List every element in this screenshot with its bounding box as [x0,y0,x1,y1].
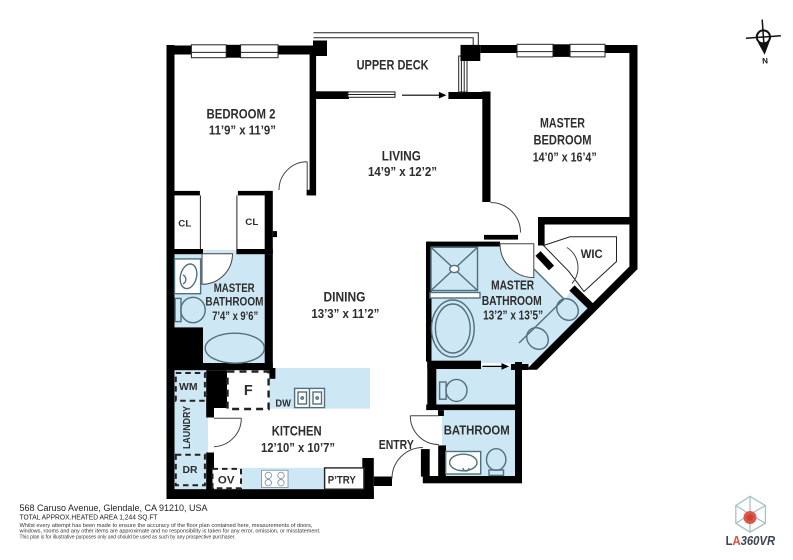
svg-text:14’9” x 12’2”: 14’9” x 12’2” [368,164,437,179]
svg-text:LAUNDRY: LAUNDRY [181,406,193,449]
svg-text:14’0” x 16’4”: 14’0” x 16’4” [533,150,597,165]
svg-text:DINING: DINING [324,290,366,305]
svg-text:CL: CL [178,219,191,230]
svg-text:F: F [244,383,253,399]
svg-text:P’TRY: P’TRY [328,475,357,487]
svg-text:7’4” x 9’6”: 7’4” x 9’6” [212,311,258,323]
svg-text:568 Caruso Avenue, Glendale, C: 568 Caruso Avenue, Glendale, CA 91210, U… [20,503,209,514]
svg-text:13’3” x 11’2”: 13’3” x 11’2” [311,306,379,321]
svg-text:MASTER: MASTER [540,115,585,131]
svg-text:MASTER: MASTER [214,281,255,295]
svg-text:DR: DR [183,464,198,476]
svg-text:LA360VR: LA360VR [726,534,776,548]
svg-text:BATHROOM: BATHROOM [444,423,510,438]
svg-text:OV: OV [218,475,235,487]
svg-text:KITCHEN: KITCHEN [272,423,322,439]
svg-text:BATHROOM: BATHROOM [482,293,542,308]
svg-text:11’9” x 11’9”: 11’9” x 11’9” [209,123,276,138]
svg-text:This plan is for illustrative: This plan is for illustrative purposes o… [20,535,236,541]
svg-text:MASTER: MASTER [491,278,534,293]
svg-text:13’2” x 13’5”: 13’2” x 13’5” [483,309,543,323]
svg-text:BEDROOM 2: BEDROOM 2 [207,105,276,121]
svg-text:WIC: WIC [581,249,603,261]
svg-text:LIVING: LIVING [382,147,421,163]
svg-text:WM: WM [179,381,198,393]
svg-text:UPPER DECK: UPPER DECK [357,57,429,73]
svg-text:BATHROOM: BATHROOM [205,294,263,308]
svg-text:N: N [762,56,769,65]
svg-text:BEDROOM: BEDROOM [534,132,592,148]
svg-text:ENTRY: ENTRY [379,438,415,452]
svg-text:DW: DW [275,398,291,409]
svg-text:CL: CL [245,217,258,228]
svg-text:TOTAL APPROX.HEATED AREA 1,244: TOTAL APPROX.HEATED AREA 1,244 SQ.FT [20,514,159,521]
svg-text:12’10” x 10’7”: 12’10” x 10’7” [261,440,335,455]
